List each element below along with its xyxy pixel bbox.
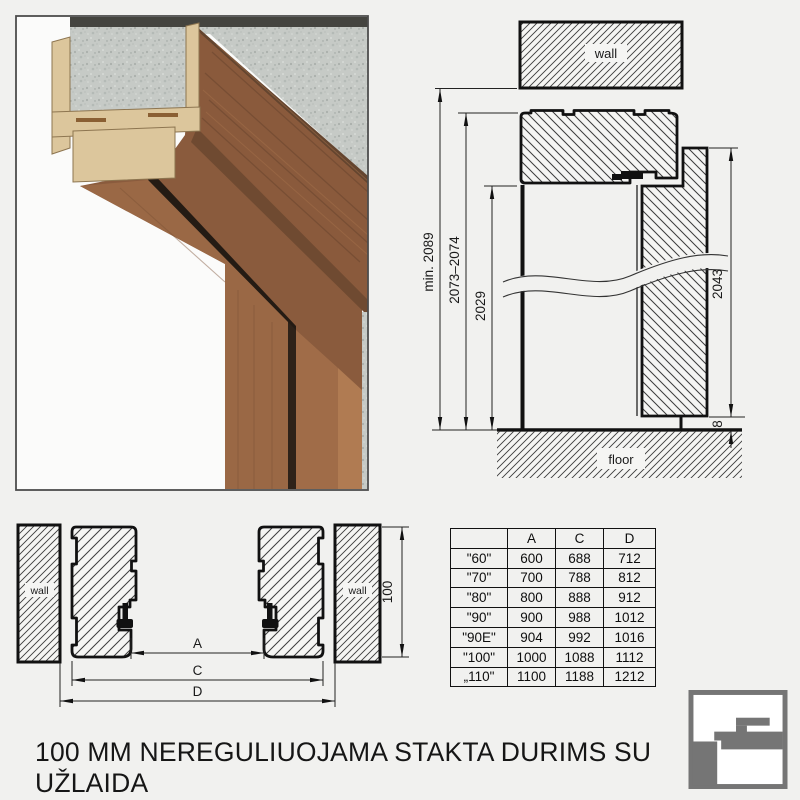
dim-floor-gap: 8 — [710, 420, 725, 428]
table-header-d: D — [604, 529, 656, 549]
table-row: "70"700788812 — [451, 568, 656, 588]
dim-depth-100: 100 — [380, 581, 395, 604]
head-seal-lip — [612, 174, 622, 180]
floor-label: floor — [608, 452, 634, 467]
table-row: „110"110011881212 — [451, 667, 656, 687]
mdf-groove-1 — [76, 118, 106, 122]
dim-a-label: A — [193, 636, 202, 651]
wall-left-label: wall — [29, 585, 48, 597]
table-header-row: A C D — [451, 529, 656, 549]
table-row: "80"800888912 — [451, 588, 656, 608]
wall-cut-top-edge — [70, 17, 368, 27]
mdf-groove-2 — [148, 113, 178, 117]
dim-leaf-height: 2043 — [710, 269, 725, 299]
frame-head-profile — [521, 111, 677, 184]
vertical-section-drawing: wall floor — [421, 22, 745, 478]
table-header-a: A — [508, 529, 556, 549]
wall-label: wall — [594, 46, 618, 61]
wall-right-label: wall — [347, 585, 366, 597]
mdf-front-block — [73, 127, 175, 182]
horizontal-section-drawing: wall wall — [18, 525, 409, 707]
table-row: "60"600688712 — [451, 548, 656, 568]
dim-c-label: C — [193, 663, 203, 678]
dim-frame-height: 2073–2074 — [447, 236, 462, 304]
photo-3d-frame-corner — [16, 16, 368, 490]
jamb-profile-left — [72, 527, 136, 657]
page-title: 100 MM NEREGULIUOJAMA STAKTA DURIMS SU U… — [35, 737, 755, 799]
jamb-seal-groove — [288, 322, 296, 489]
spec-sheet-artwork: wall floor — [0, 0, 800, 800]
brand-logo — [688, 690, 788, 789]
logo-top-bar — [736, 718, 770, 726]
jamb-profile-right — [259, 527, 323, 657]
table-row: "100"100010881112 — [451, 647, 656, 667]
size-table: A C D "60"600688712 "70"700788812 "80"80… — [450, 528, 656, 687]
dim-clear-height: 2029 — [473, 291, 488, 321]
table-header-c: C — [556, 529, 604, 549]
logo-wall-block — [692, 741, 717, 785]
table-row: "90"9009881012 — [451, 608, 656, 628]
table-header-empty — [451, 529, 508, 549]
dim-min-height: min. 2089 — [421, 232, 436, 291]
concrete-wall-strip — [70, 27, 188, 118]
logo-profile-band — [714, 732, 782, 750]
table-row: "90E"9049921016 — [451, 627, 656, 647]
head-seal-detail — [621, 171, 643, 179]
dim-d-label: D — [193, 684, 203, 699]
